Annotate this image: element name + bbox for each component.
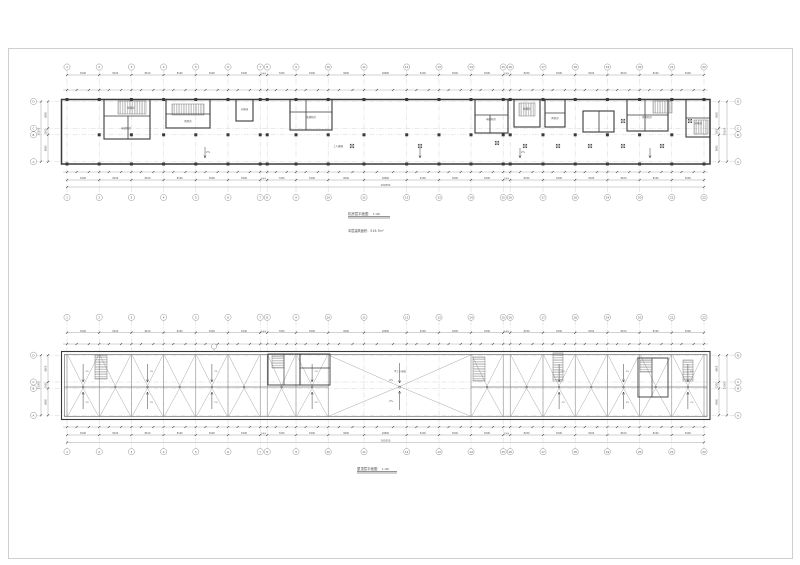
svg-text:B: B [33, 387, 35, 391]
svg-text:1500: 1500 [716, 382, 719, 388]
svg-text:8100: 8100 [209, 177, 215, 180]
svg-text:2%: 2% [85, 371, 88, 373]
svg-text:7: 7 [259, 65, 261, 69]
svg-text:B: B [737, 133, 739, 137]
svg-text:8100: 8100 [621, 177, 627, 180]
svg-text:8100: 8100 [653, 177, 659, 180]
svg-text:9: 9 [295, 315, 297, 319]
svg-text:15300: 15300 [37, 381, 41, 389]
svg-text:8100: 8100 [556, 177, 562, 180]
svg-text:8100: 8100 [309, 330, 315, 333]
svg-text:2%: 2% [389, 400, 394, 403]
svg-text:2%: 2% [206, 150, 211, 154]
svg-text:2: 2 [98, 65, 100, 69]
svg-text:8100: 8100 [309, 432, 315, 435]
svg-text:13: 13 [437, 65, 441, 69]
svg-text:1800: 1800 [261, 73, 267, 75]
svg-text:8100: 8100 [452, 432, 458, 435]
svg-text:1500: 1500 [45, 382, 48, 388]
svg-text:A: A [737, 413, 739, 417]
svg-text:8100: 8100 [112, 330, 118, 333]
svg-text:6900: 6900 [716, 365, 719, 371]
svg-text:8100: 8100 [484, 330, 490, 333]
svg-text:2%: 2% [314, 402, 317, 404]
svg-text:16: 16 [508, 315, 512, 319]
drawing-sheet: 1122334455667788991010111112121313141415… [0, 0, 800, 565]
svg-text:17: 17 [541, 65, 545, 69]
svg-text:13: 13 [437, 196, 441, 200]
svg-text:9000: 9000 [343, 330, 349, 333]
svg-text:8250: 8250 [524, 177, 530, 180]
svg-text:楼梯间: 楼梯间 [523, 107, 531, 111]
svg-text:22: 22 [702, 196, 706, 200]
svg-text:2%: 2% [690, 402, 693, 404]
svg-text:上人屋面: 上人屋面 [333, 144, 344, 148]
svg-text:8100: 8100 [556, 72, 562, 75]
svg-text:5: 5 [195, 315, 197, 319]
svg-text:2: 2 [98, 450, 100, 454]
svg-text:4: 4 [163, 65, 165, 69]
svg-text:4: 4 [163, 450, 165, 454]
svg-text:12: 12 [405, 196, 409, 200]
svg-text:21: 21 [670, 196, 674, 200]
svg-text:21: 21 [670, 65, 674, 69]
svg-text:10800: 10800 [382, 177, 390, 180]
svg-text:4: 4 [163, 315, 165, 319]
svg-text:13: 13 [437, 450, 441, 454]
svg-text:8100: 8100 [309, 72, 315, 75]
svg-text:8100: 8100 [241, 330, 247, 333]
svg-text:8100: 8100 [209, 72, 215, 75]
svg-text:8100: 8100 [112, 432, 118, 435]
svg-text:2%: 2% [150, 402, 153, 404]
plan1-titleblock: 机房层平面图 1:100 本层建筑面积：519.7m² [348, 211, 390, 233]
svg-text:10800: 10800 [382, 432, 390, 435]
svg-text:A: A [33, 413, 35, 417]
svg-text:8100: 8100 [177, 432, 183, 435]
svg-text:20: 20 [638, 450, 642, 454]
svg-text:8100: 8100 [80, 72, 86, 75]
svg-text:2%: 2% [561, 402, 564, 404]
svg-text:2%: 2% [314, 371, 317, 373]
svg-text:8100: 8100 [309, 177, 315, 180]
svg-text:10800: 10800 [382, 72, 390, 75]
svg-text:6900: 6900 [716, 111, 719, 117]
svg-text:3: 3 [131, 65, 133, 69]
svg-text:8100: 8100 [80, 330, 86, 333]
svg-text:D: D [737, 100, 739, 104]
svg-text:8100: 8100 [145, 177, 151, 180]
svg-text:6900: 6900 [45, 398, 48, 404]
svg-text:1800: 1800 [504, 433, 510, 435]
svg-text:8100: 8100 [112, 177, 118, 180]
svg-text:8100: 8100 [452, 72, 458, 75]
svg-text:17: 17 [541, 450, 545, 454]
svg-text:8100: 8100 [484, 72, 490, 75]
plan1-area-note: 本层建筑面积：519.7m² [348, 228, 385, 233]
svg-text:10: 10 [326, 65, 330, 69]
svg-text:9: 9 [295, 65, 297, 69]
svg-text:6: 6 [227, 450, 229, 454]
svg-text:D: D [737, 353, 739, 357]
svg-text:19: 19 [606, 450, 610, 454]
svg-text:8100: 8100 [653, 432, 659, 435]
svg-text:1500: 1500 [45, 128, 48, 134]
svg-text:C: C [33, 126, 35, 130]
svg-text:10800: 10800 [382, 330, 390, 333]
svg-text:5: 5 [195, 65, 197, 69]
svg-text:排风机房: 排风机房 [642, 115, 653, 119]
svg-text:19: 19 [606, 196, 610, 200]
svg-text:6900: 6900 [716, 145, 719, 151]
svg-text:8100: 8100 [80, 177, 86, 180]
svg-text:8100: 8100 [621, 330, 627, 333]
svg-text:15300: 15300 [37, 127, 41, 135]
svg-text:15: 15 [501, 315, 505, 319]
svg-text:16: 16 [508, 196, 512, 200]
svg-text:2: 2 [98, 315, 100, 319]
svg-text:9: 9 [295, 196, 297, 200]
svg-text:2%: 2% [214, 371, 217, 373]
svg-text:18: 18 [573, 315, 577, 319]
svg-text:1800: 1800 [261, 433, 267, 435]
drawing-layers: 1122334455667788991010111112121313141415… [9, 49, 793, 559]
svg-text:12: 12 [405, 315, 409, 319]
svg-text:21: 21 [670, 315, 674, 319]
svg-text:10: 10 [326, 196, 330, 200]
svg-text:8: 8 [266, 65, 268, 69]
svg-text:17: 17 [541, 196, 545, 200]
svg-text:A: A [33, 160, 35, 164]
svg-text:6: 6 [227, 315, 229, 319]
svg-text:22: 22 [702, 450, 706, 454]
svg-text:14: 14 [469, 65, 473, 69]
svg-text:15300: 15300 [723, 381, 727, 389]
svg-text:22: 22 [702, 65, 706, 69]
svg-text:7: 7 [259, 315, 261, 319]
roof-plan: 1122334455667788991010111112121313141415… [30, 314, 741, 455]
svg-text:8100: 8100 [653, 330, 659, 333]
svg-text:3: 3 [131, 315, 133, 319]
svg-text:风机房: 风机房 [184, 119, 192, 123]
svg-text:8250: 8250 [524, 72, 530, 75]
svg-text:14: 14 [469, 196, 473, 200]
svg-text:1: 1 [66, 315, 68, 319]
svg-text:8100: 8100 [241, 177, 247, 180]
svg-text:7200: 7200 [279, 177, 285, 180]
svg-text:6900: 6900 [45, 365, 48, 371]
svg-text:8100: 8100 [177, 330, 183, 333]
svg-text:4: 4 [163, 196, 165, 200]
svg-text:16: 16 [508, 450, 512, 454]
svg-text:7: 7 [259, 196, 261, 200]
svg-text:15: 15 [501, 196, 505, 200]
plan2-scale: 1:100 [382, 468, 389, 471]
svg-text:8: 8 [266, 315, 268, 319]
svg-text:7200: 7200 [279, 72, 285, 75]
svg-text:1: 1 [66, 65, 68, 69]
svg-text:8100: 8100 [685, 330, 691, 333]
svg-text:8100: 8100 [685, 432, 691, 435]
svg-text:9000: 9000 [343, 72, 349, 75]
svg-text:2%: 2% [214, 402, 217, 404]
svg-text:8100: 8100 [621, 432, 627, 435]
svg-text:9: 9 [295, 450, 297, 454]
svg-text:8100: 8100 [145, 330, 151, 333]
svg-text:6900: 6900 [716, 398, 719, 404]
svg-text:8100: 8100 [588, 72, 594, 75]
upper-floor-plan: 1122334455667788991010111112121313141415… [30, 64, 741, 201]
svg-text:19: 19 [606, 65, 610, 69]
plan2-titleblock: 屋顶层平面图 1:100 [357, 466, 397, 473]
svg-text:电梯机房: 电梯机房 [486, 117, 497, 121]
svg-text:不上人屋面: 不上人屋面 [394, 369, 407, 373]
svg-text:10: 10 [326, 315, 330, 319]
svg-text:C: C [737, 126, 739, 130]
svg-text:B: B [33, 133, 35, 137]
svg-text:电梯机房: 电梯机房 [121, 126, 132, 130]
svg-text:6: 6 [227, 65, 229, 69]
svg-text:8: 8 [266, 450, 268, 454]
svg-text:5: 5 [195, 196, 197, 200]
svg-text:水箱间: 水箱间 [694, 121, 702, 125]
svg-text:8100: 8100 [209, 330, 215, 333]
svg-text:20: 20 [638, 65, 642, 69]
svg-text:8100: 8100 [209, 432, 215, 435]
svg-text:2%: 2% [150, 371, 153, 373]
svg-text:8100: 8100 [241, 432, 247, 435]
svg-text:9000: 9000 [343, 432, 349, 435]
svg-text:8100: 8100 [621, 72, 627, 75]
svg-text:20: 20 [638, 196, 642, 200]
svg-text:8100: 8100 [685, 72, 691, 75]
svg-text:8100: 8100 [80, 432, 86, 435]
svg-text:12: 12 [405, 65, 409, 69]
plan1-title: 机房层平面图 [348, 211, 369, 216]
svg-text:8100: 8100 [177, 72, 183, 75]
svg-text:15: 15 [501, 450, 505, 454]
svg-text:18: 18 [573, 450, 577, 454]
svg-text:风机房: 风机房 [551, 116, 559, 120]
svg-text:8100: 8100 [177, 177, 183, 180]
svg-text:22: 22 [702, 315, 706, 319]
svg-text:C: C [737, 380, 739, 384]
svg-text:14: 14 [469, 315, 473, 319]
svg-text:8100: 8100 [145, 72, 151, 75]
svg-text:8100: 8100 [241, 72, 247, 75]
svg-text:1: 1 [66, 450, 68, 454]
svg-text:8100: 8100 [420, 72, 426, 75]
svg-text:19: 19 [606, 315, 610, 319]
svg-text:8100: 8100 [484, 177, 490, 180]
svg-text:8100: 8100 [588, 177, 594, 180]
svg-text:160350: 160350 [381, 183, 391, 187]
svg-text:7: 7 [259, 450, 261, 454]
svg-text:8100: 8100 [484, 432, 490, 435]
svg-text:9000: 9000 [343, 177, 349, 180]
svg-text:7200: 7200 [279, 330, 285, 333]
svg-text:C: C [33, 380, 35, 384]
svg-text:8100: 8100 [653, 72, 659, 75]
svg-text:B: B [737, 387, 739, 391]
svg-text:8100: 8100 [420, 177, 426, 180]
svg-text:11: 11 [362, 196, 366, 200]
svg-text:18: 18 [573, 65, 577, 69]
svg-text:20: 20 [638, 315, 642, 319]
svg-text:10: 10 [326, 450, 330, 454]
svg-text:6900: 6900 [45, 145, 48, 151]
svg-text:8100: 8100 [556, 330, 562, 333]
svg-text:15300: 15300 [723, 127, 727, 135]
svg-text:11: 11 [362, 65, 366, 69]
svg-text:12: 12 [405, 450, 409, 454]
svg-text:1800: 1800 [504, 331, 510, 333]
svg-text:1: 1 [66, 196, 68, 200]
svg-text:1800: 1800 [261, 331, 267, 333]
svg-text:8100: 8100 [112, 72, 118, 75]
svg-text:2%: 2% [85, 402, 88, 404]
svg-text:8100: 8100 [452, 177, 458, 180]
svg-text:160350: 160350 [381, 439, 391, 443]
svg-text:15: 15 [501, 65, 505, 69]
svg-text:8100: 8100 [685, 177, 691, 180]
svg-text:A: A [737, 160, 739, 164]
svg-text:8250: 8250 [524, 330, 530, 333]
svg-text:2%: 2% [389, 379, 394, 382]
svg-text:14: 14 [469, 450, 473, 454]
svg-text:2%: 2% [626, 402, 629, 404]
svg-text:D: D [32, 100, 34, 104]
svg-text:11: 11 [362, 315, 366, 319]
svg-text:楼梯间: 楼梯间 [127, 106, 135, 110]
svg-text:2: 2 [98, 196, 100, 200]
svg-text:1800: 1800 [504, 178, 510, 180]
svg-text:8100: 8100 [420, 330, 426, 333]
svg-text:8100: 8100 [588, 432, 594, 435]
svg-text:1800: 1800 [504, 73, 510, 75]
cad-drawing: 1122334455667788991010111112121313141415… [0, 0, 800, 565]
svg-text:8100: 8100 [556, 432, 562, 435]
svg-text:21: 21 [670, 450, 674, 454]
svg-text:17: 17 [541, 315, 545, 319]
svg-text:水箱间: 水箱间 [241, 107, 249, 111]
svg-text:2%: 2% [626, 371, 629, 373]
svg-text:8100: 8100 [452, 330, 458, 333]
svg-text:6: 6 [227, 196, 229, 200]
svg-text:8: 8 [266, 196, 268, 200]
svg-text:3: 3 [131, 450, 133, 454]
svg-text:13: 13 [437, 315, 441, 319]
sheet-frame [9, 49, 793, 559]
plan1-scale: 1:100 [373, 213, 380, 216]
svg-text:18: 18 [573, 196, 577, 200]
svg-text:11: 11 [362, 450, 366, 454]
svg-text:8100: 8100 [588, 330, 594, 333]
svg-text:8100: 8100 [145, 432, 151, 435]
svg-text:5: 5 [195, 450, 197, 454]
svg-text:1500: 1500 [716, 128, 719, 134]
svg-text:排烟机房: 排烟机房 [306, 115, 317, 119]
svg-text:8250: 8250 [524, 432, 530, 435]
svg-text:8100: 8100 [420, 432, 426, 435]
svg-text:D: D [32, 353, 34, 357]
svg-text:7200: 7200 [279, 432, 285, 435]
svg-text:16: 16 [508, 65, 512, 69]
svg-text:1800: 1800 [261, 178, 267, 180]
svg-text:2%: 2% [521, 150, 526, 154]
svg-text:3: 3 [131, 196, 133, 200]
svg-text:6900: 6900 [45, 111, 48, 117]
plan2-title: 屋顶层平面图 [357, 466, 378, 471]
